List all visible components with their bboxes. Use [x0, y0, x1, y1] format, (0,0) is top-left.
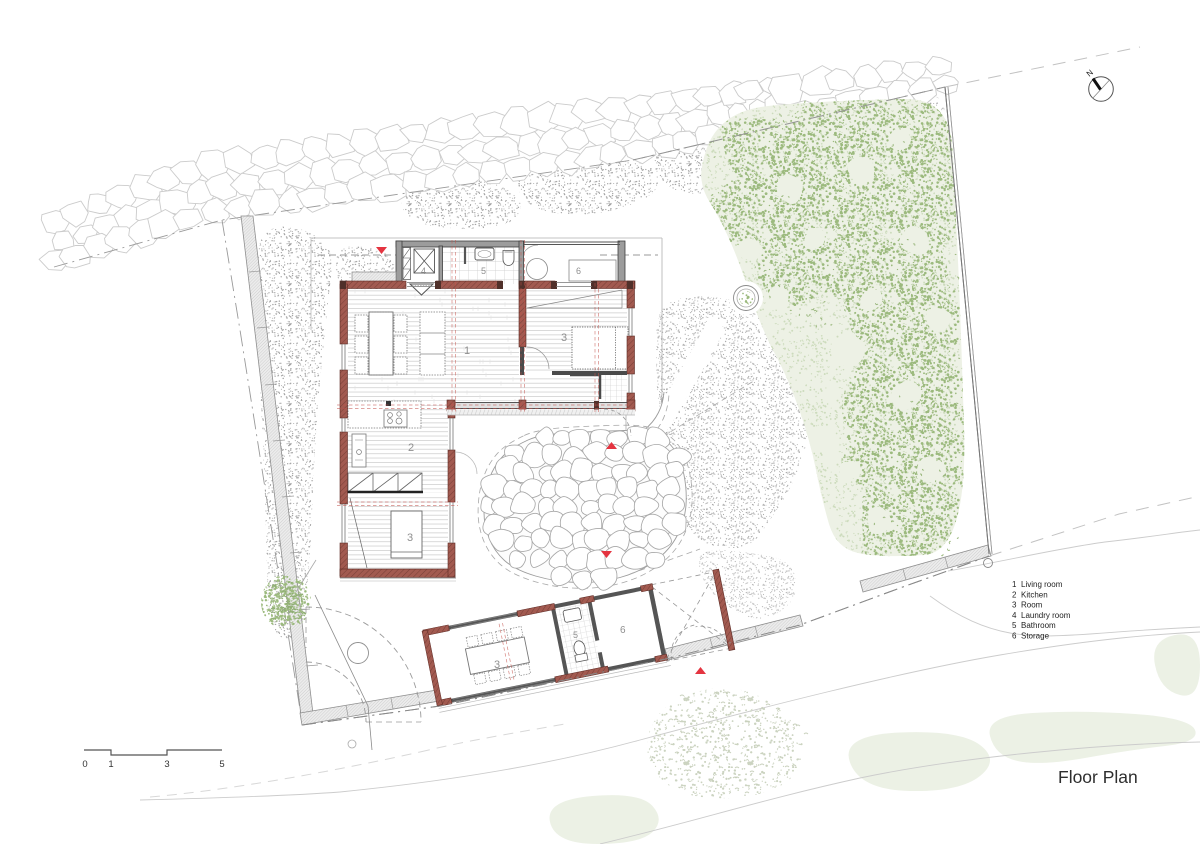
svg-text:1: 1 — [1012, 580, 1017, 589]
svg-text:Bathroom: Bathroom — [1021, 621, 1056, 630]
svg-text:5: 5 — [219, 759, 224, 770]
svg-text:Living room: Living room — [1021, 580, 1063, 589]
svg-text:5: 5 — [481, 266, 486, 276]
svg-text:0: 0 — [82, 759, 87, 770]
svg-text:4: 4 — [1012, 611, 1017, 620]
svg-text:Room: Room — [1021, 601, 1043, 610]
svg-text:Floor Plan: Floor Plan — [1058, 767, 1138, 787]
svg-text:6: 6 — [620, 625, 626, 636]
svg-text:6: 6 — [1012, 632, 1017, 641]
svg-text:Storage: Storage — [1021, 632, 1050, 641]
svg-text:3: 3 — [164, 759, 169, 770]
svg-text:5: 5 — [573, 630, 578, 640]
svg-text:2: 2 — [1012, 590, 1017, 599]
svg-text:3: 3 — [561, 332, 567, 344]
svg-text:2: 2 — [408, 442, 414, 454]
svg-text:1: 1 — [108, 759, 113, 770]
svg-text:3: 3 — [494, 659, 500, 671]
svg-text:1: 1 — [464, 345, 470, 357]
svg-text:3: 3 — [1012, 601, 1017, 610]
svg-text:6: 6 — [576, 266, 581, 276]
svg-text:3: 3 — [407, 532, 413, 544]
svg-text:Laundry room: Laundry room — [1021, 611, 1071, 620]
svg-text:5: 5 — [1012, 621, 1017, 630]
svg-text:Kitchen: Kitchen — [1021, 590, 1048, 599]
svg-text:4: 4 — [421, 266, 426, 276]
